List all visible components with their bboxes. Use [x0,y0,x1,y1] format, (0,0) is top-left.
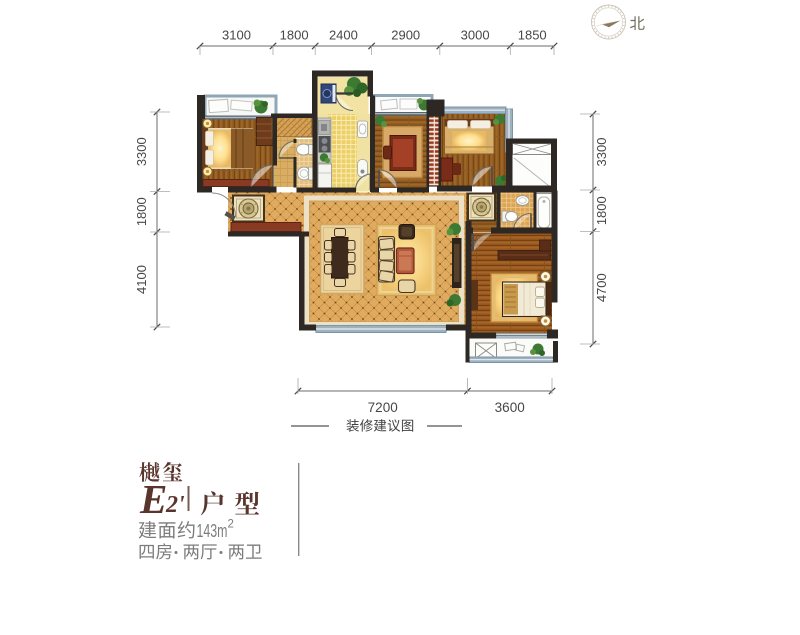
svg-text:7200: 7200 [368,400,398,415]
svg-text:1800: 1800 [280,28,309,43]
svg-text:143m: 143m [197,520,228,541]
svg-text:4100: 4100 [134,265,149,294]
svg-text:3600: 3600 [495,400,525,415]
svg-text:1800: 1800 [134,197,149,226]
svg-text:3000: 3000 [461,28,490,43]
svg-text:2900: 2900 [391,28,420,43]
svg-text:4700: 4700 [594,273,609,302]
svg-text:2400: 2400 [329,28,358,43]
svg-text:2: 2 [228,519,234,531]
svg-text:1800: 1800 [594,196,609,225]
svg-text:1850: 1850 [518,28,547,43]
svg-text:E: E [139,476,167,522]
svg-text:2': 2' [165,492,185,518]
svg-text:3300: 3300 [594,138,609,167]
svg-text:3300: 3300 [134,137,149,166]
svg-text:3100: 3100 [222,28,251,43]
